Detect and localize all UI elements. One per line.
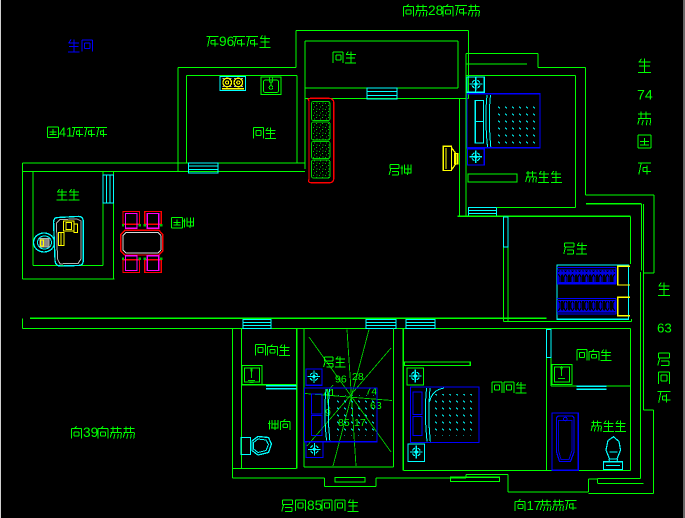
svg-text:39: 39 xyxy=(83,425,98,440)
svg-text:63: 63 xyxy=(657,321,672,336)
svg-text:85: 85 xyxy=(307,498,323,513)
svg-text:74: 74 xyxy=(637,87,653,103)
svg-text:96: 96 xyxy=(335,374,347,386)
svg-text:96: 96 xyxy=(219,34,235,49)
svg-text:41: 41 xyxy=(59,125,73,139)
svg-text:17: 17 xyxy=(527,498,542,513)
svg-text:28: 28 xyxy=(352,371,364,383)
svg-text:28: 28 xyxy=(428,3,444,18)
